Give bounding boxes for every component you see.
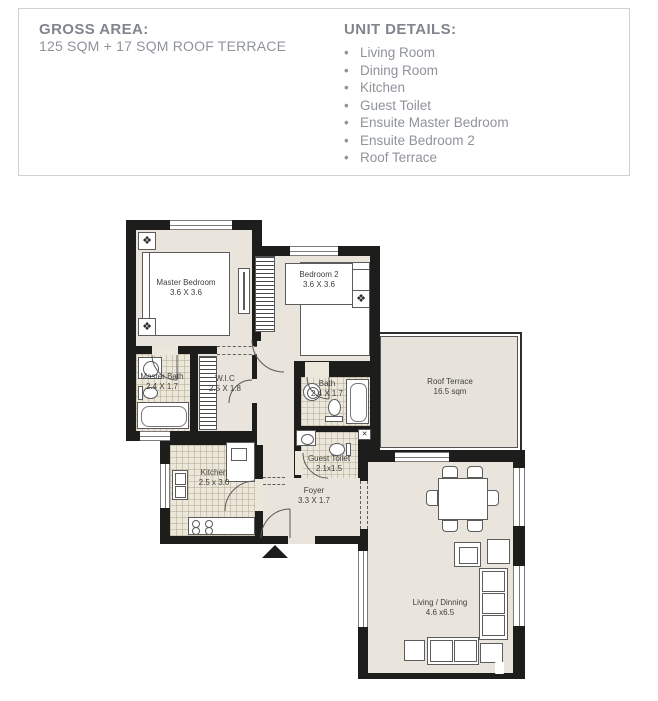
list-item-label: Kitchen <box>360 79 405 97</box>
bullet-icon: • <box>344 97 360 115</box>
room-name: Living / Dinning <box>385 598 495 608</box>
room-name: Guest Toilet <box>298 454 360 464</box>
foyer-label: Foyer 3.3 X 1.7 <box>282 486 346 507</box>
room-dims: 4.6 x6.5 <box>385 608 495 618</box>
bullet-icon: • <box>344 79 360 97</box>
room-dims: 2.5 X 1.8 <box>200 384 250 394</box>
list-item-label: Roof Terrace <box>360 149 437 167</box>
gross-area-section: GROSS AREA: 125 SQM + 17 SQM ROOF TERRAC… <box>39 21 329 54</box>
list-item: •Kitchen <box>344 79 619 97</box>
room-dims: 3.3 X 1.7 <box>282 496 346 506</box>
list-item: •Ensuite Master Bedroom <box>344 114 619 132</box>
room-dims: 16.5 sqm <box>405 387 495 397</box>
list-item-label: Guest Toilet <box>360 97 431 115</box>
unit-details-section: UNIT DETAILS: •Living Room •Dining Room … <box>344 21 619 167</box>
room-dims: 2.4 X 1.7 <box>304 389 350 399</box>
room-dims: 3.6 X 3.6 <box>156 288 216 298</box>
room-dims: 2.1x1.5 <box>298 464 360 474</box>
unit-details-title: UNIT DETAILS: <box>344 21 619 38</box>
room-dims: 3.6 X 3.6 <box>289 280 349 290</box>
room-name: Bath <box>304 379 350 389</box>
list-item: •Guest Toilet <box>344 97 619 115</box>
gross-area-value: 125 SQM + 17 SQM ROOF TERRACE <box>39 38 329 54</box>
room-name: Roof Terrace <box>405 377 495 387</box>
info-panel: GROSS AREA: 125 SQM + 17 SQM ROOF TERRAC… <box>18 8 630 176</box>
bullet-icon: • <box>344 114 360 132</box>
list-item: •Living Room <box>344 44 619 62</box>
master-bath-label: Master Bath 2.4 X 1.7 <box>132 372 192 393</box>
wic-label: W.I.C 2.5 X 1.8 <box>200 374 250 395</box>
room-name: Master Bath <box>132 372 192 382</box>
list-item: •Dining Room <box>344 62 619 80</box>
entry-arrow-icon <box>262 545 288 558</box>
room-name: Bedroom 2 <box>289 270 349 280</box>
bath-label: Bath 2.4 X 1.7 <box>304 379 350 400</box>
list-item-label: Ensuite Master Bedroom <box>360 114 509 132</box>
kitchen-label: Kitchen 2.5 x 3.0 <box>182 468 246 489</box>
room-dims: 2.4 X 1.7 <box>132 382 192 392</box>
living-dining-label: Living / Dinning 4.6 x6.5 <box>385 598 495 619</box>
bedroom2-door-arc <box>252 340 284 372</box>
list-item-label: Dining Room <box>360 62 438 80</box>
floor-plan: ✕ ❖ ❖ ❖ <box>118 216 538 690</box>
room-name: Kitchen <box>182 468 246 478</box>
room-name: W.I.C <box>200 374 250 384</box>
unit-details-list: •Living Room •Dining Room •Kitchen •Gues… <box>344 44 619 167</box>
list-item-label: Ensuite Bedroom 2 <box>360 132 475 150</box>
entry-door-arc <box>261 509 290 538</box>
bullet-icon: • <box>344 149 360 167</box>
list-item: •Ensuite Bedroom 2 <box>344 132 619 150</box>
room-name: Master Bedroom <box>156 278 216 288</box>
bullet-icon: • <box>344 44 360 62</box>
room-name: Foyer <box>282 486 346 496</box>
list-item: •Roof Terrace <box>344 149 619 167</box>
floorplan-flyer: GROSS AREA: 125 SQM + 17 SQM ROOF TERRAC… <box>0 0 658 701</box>
master-bedroom-label: Master Bedroom 3.6 X 3.6 <box>156 278 216 299</box>
guest-toilet-label: Guest Toilet 2.1x1.5 <box>298 454 360 475</box>
bedroom2-label: Bedroom 2 3.6 X 3.6 <box>289 270 349 291</box>
bullet-icon: • <box>344 132 360 150</box>
roof-terrace-label: Roof Terrace 16.5 sqm <box>405 377 495 398</box>
gross-area-title: GROSS AREA: <box>39 21 329 38</box>
list-item-label: Living Room <box>360 44 435 62</box>
room-dims: 2.5 x 3.0 <box>182 478 246 488</box>
bullet-icon: • <box>344 62 360 80</box>
